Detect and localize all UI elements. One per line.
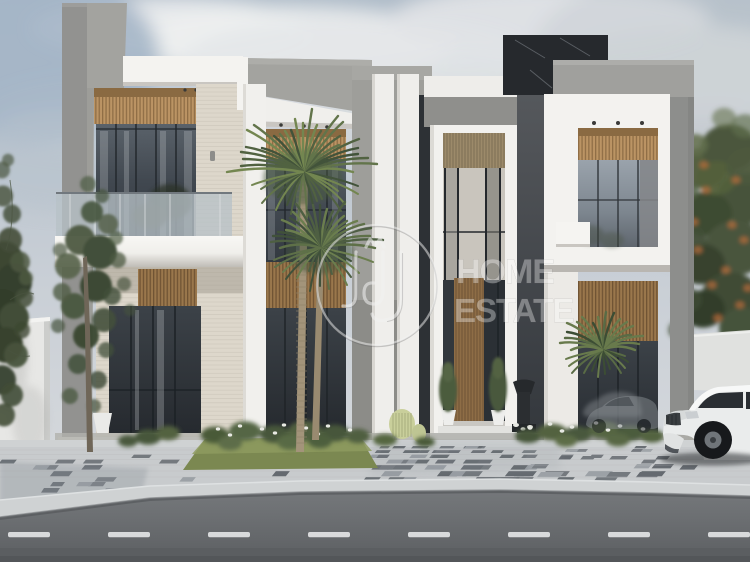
- svg-text:ESTATE: ESTATE: [454, 292, 573, 329]
- svg-text:HOME: HOME: [456, 253, 554, 291]
